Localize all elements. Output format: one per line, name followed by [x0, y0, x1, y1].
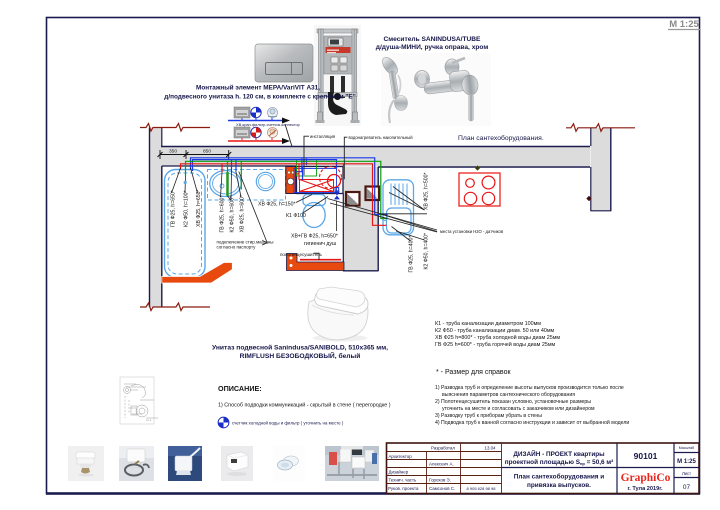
svg-text:полотенцесушитель: полотенцесушитель: [280, 252, 323, 257]
svg-text:ХВ-кран-фильтр-счетчик-коллект: ХВ-кран-фильтр-счетчик-коллектор: [236, 122, 300, 127]
svg-text:1) Разводка труб и определени: 1) Разводка труб и определение высоты вы…: [435, 385, 624, 391]
svg-text:Смеситель SANINDUSA/TUBE: Смеситель SANINDUSA/TUBE: [384, 36, 481, 43]
svg-text:ГВ Ф25, h=600*: ГВ Ф25, h=600*: [220, 196, 226, 233]
svg-text:ХВ Ф25 h=800* - труба холодной: ХВ Ф25 h=800* - труба холодной воды диам…: [435, 334, 560, 341]
svg-text:К2 Ф50, h=600*: К2 Ф50, h=600*: [230, 196, 236, 233]
svg-text:К2 Ф50, h=100*: К2 Ф50, h=100*: [184, 190, 190, 227]
svg-text:К2 Ф50 - труба канализации диа: К2 Ф50 - труба канализации диам. 50 или …: [435, 328, 555, 334]
svg-text:М 1:25: М 1:25: [677, 459, 696, 465]
svg-text:ГВ Ф25 h=600* - труба горячей: ГВ Ф25 h=600* - труба горячей воды диам …: [435, 341, 556, 348]
svg-text:План сантехоборудования и: План сантехоборудования и: [514, 473, 605, 481]
svg-text:М 1:25: М 1:25: [669, 19, 699, 30]
svg-text:Монтажный элемент MEPA/VariVIT: Монтажный элемент MEPA/VariVIT А31,: [196, 84, 320, 92]
svg-text:г. Тула 2019г.: г. Тула 2019г.: [627, 486, 663, 492]
svg-text:д/подвесного унитаза h. 120 см: д/подвесного унитаза h. 120 см, в компле…: [164, 94, 355, 101]
svg-text:ДИЗАЙН - ПРОЕКТ квартиры: ДИЗАЙН - ПРОЕКТ квартиры: [513, 449, 605, 458]
svg-text:850: 850: [203, 149, 211, 155]
svg-text:1) Способ подводки коммуникаци: 1) Способ подводки коммуникаций - скрыты…: [218, 402, 391, 409]
svg-text:Руков. проекта: Руков. проекта: [388, 486, 419, 491]
svg-text:выяснения параметров сантехнич: выяснения параметров сантехнического обо…: [442, 392, 575, 398]
svg-text:Лист: Лист: [682, 471, 691, 476]
svg-text:2) Полотенцесушитель показан: 2) Полотенцесушитель показан условно, ус…: [435, 399, 591, 405]
svg-text:Алексеич А.: Алексеич А.: [429, 462, 454, 467]
svg-text:ХВ Ф25, h=600*: ХВ Ф25, h=600*: [240, 195, 246, 233]
svg-text:ОПИСАНИЕ:: ОПИСАНИЕ:: [218, 384, 262, 393]
svg-text:350: 350: [169, 149, 177, 155]
svg-text:Масштаб: Масштаб: [679, 446, 694, 450]
svg-text:Самсонов С.: Самсонов С.: [429, 486, 455, 491]
svg-text:ГВ Ф25, h=650*: ГВ Ф25, h=650*: [171, 190, 177, 227]
svg-text:водонагреватель накопительный: водонагреватель накопительный: [349, 135, 414, 140]
svg-text:ХВ Ф25, h=150*: ХВ Ф25, h=150*: [258, 202, 296, 208]
svg-text:ГВ Ф25, h=400*: ГВ Ф25, h=400*: [409, 236, 415, 273]
svg-text:счетчик холодной воды и фильтр: счетчик холодной воды и фильтр ( уточнит…: [232, 421, 344, 426]
svg-text:ХВ Ф25, h=650*: ХВ Ф25, h=650*: [196, 189, 202, 227]
svg-text:4) Подводка труб к ванной сог: 4) Подводка труб к ванной согласно инстр…: [435, 419, 629, 426]
svg-text:согласно паспорту: согласно паспорту: [217, 245, 257, 250]
svg-text:гигиенич душ: гигиенич душ: [304, 241, 336, 247]
svg-text:К1 Ф100: К1 Ф100: [286, 213, 306, 219]
svg-text:13.04: 13.04: [485, 446, 497, 451]
svg-text:Разработал: Разработал: [431, 446, 455, 451]
svg-text:GraphiCo: GraphiCo: [621, 472, 671, 484]
svg-text:Технич. часть: Технич. часть: [389, 478, 418, 483]
svg-text:д/душа-МИНИ, ручка оправа, хро: д/душа-МИНИ, ручка оправа, хром: [376, 44, 489, 51]
svg-text:90101: 90101: [634, 451, 658, 461]
svg-text:8 905 628 98 98: 8 905 628 98 98: [467, 486, 497, 491]
svg-text:проектной площадью Sпр = 50,6: проектной площадью Sпр = 50,6 м²: [505, 458, 613, 466]
svg-text:инсталляция: инсталляция: [310, 134, 335, 139]
svg-text:План сантехоборудования.: План сантехоборудования.: [458, 134, 544, 142]
svg-text:сх.1: сх.1: [146, 418, 152, 422]
svg-text:RIMFLUSH БЕЗОБОДКОВЫЙ, белый: RIMFLUSH БЕЗОБОДКОВЫЙ, белый: [240, 351, 361, 360]
svg-text:привязка выпусков.: привязка выпусков.: [527, 482, 591, 489]
svg-text:Унитаз подвесной Sanindusa/SAN: Унитаз подвесной Sanindusa/SANIBOLD, 510…: [212, 344, 388, 352]
svg-text:* - Размер для справок: * - Размер для справок: [436, 369, 511, 376]
svg-text:Архитектор: Архитектор: [389, 454, 413, 459]
svg-text:Дизайнер: Дизайнер: [389, 470, 409, 475]
svg-text:3) Разводку труб к приборам у: 3) Разводку труб к приборам убрать в сте…: [435, 413, 542, 419]
svg-text:Горохов Э.: Горохов Э.: [429, 478, 451, 483]
svg-text:ХВ Ф25, h=500*: ХВ Ф25, h=500*: [424, 172, 430, 210]
svg-text:ХВ+ГВ Ф25, h=650*: ХВ+ГВ Ф25, h=650*: [291, 234, 338, 240]
svg-text:07: 07: [683, 484, 691, 491]
svg-text:К1 - труба канализации диаметр: К1 - труба канализации диаметром 100мм: [435, 321, 541, 327]
svg-text:К2 Ф50, h=400*: К2 Ф50, h=400*: [424, 233, 430, 270]
svg-text:уточнить на месте и согласоват: уточнить на месте и согласовать с заказч…: [442, 405, 595, 412]
svg-text:места установки Н2О - датчиков: места установки Н2О - датчиков: [440, 229, 504, 234]
